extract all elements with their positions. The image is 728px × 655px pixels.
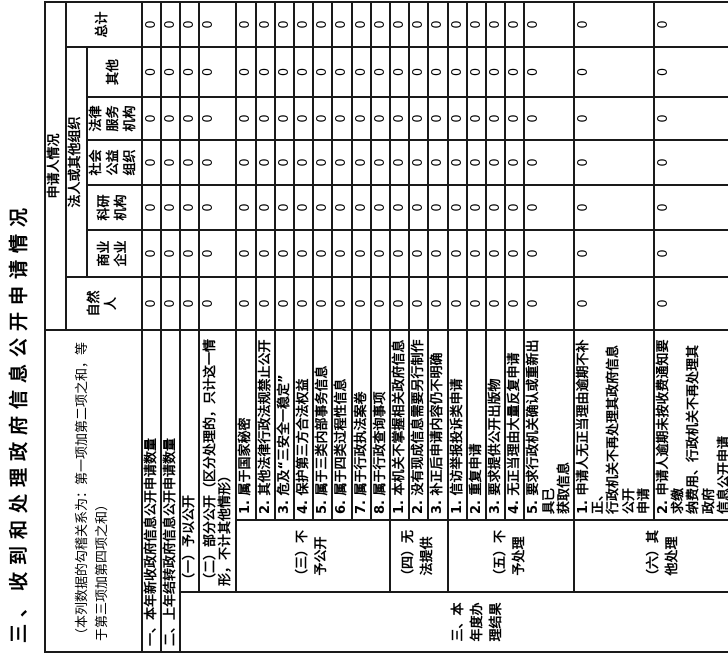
row-label: 2. 其他法律行政法规禁止公开 — [256, 330, 275, 520]
natural-person-header: 自然 人 — [66, 277, 142, 330]
data-cell: 0 — [332, 140, 351, 185]
data-cell: 0 — [313, 277, 332, 330]
data-cell: 0 — [448, 230, 467, 277]
data-cell: 0 — [371, 2, 390, 47]
data-cell: 0 — [409, 230, 428, 277]
data-cell: 0 — [486, 230, 505, 277]
header-row: （本列数据的勾稽关系为：第一项加第二项之和，等 于第三项加第四项之和） 申请人情… — [45, 2, 66, 652]
data-cell: 0 — [428, 97, 447, 140]
data-cell: 0 — [275, 97, 294, 140]
data-cell: 0 — [352, 2, 371, 47]
data-cell: 0 — [275, 140, 294, 185]
data-cell: 0 — [505, 97, 524, 140]
data-cell: 0 — [574, 2, 654, 47]
data-cell: 0 — [409, 47, 428, 97]
data-cell: 0 — [256, 277, 275, 330]
data-cell: 0 — [448, 140, 467, 185]
data-cell: 0 — [180, 185, 199, 230]
data-cell: 0 — [467, 185, 486, 230]
data-cell: 0 — [275, 2, 294, 47]
data-cell: 0 — [161, 2, 180, 47]
table-row: （二）部分公开（区分处理的，只计这一情 形，不计其他情形）0000000 — [199, 2, 236, 652]
data-cell: 0 — [199, 2, 236, 47]
data-cell: 0 — [574, 97, 654, 140]
row-label: 一、本年新收政府信息公开申请数量 — [142, 330, 161, 652]
data-cell: 0 — [180, 230, 199, 277]
subgroup-label: （三）不 予公开 — [236, 520, 390, 592]
subgroup-label: （四）无 法提供 — [390, 520, 448, 592]
commercial-enterprise-header: 商业 企业 — [87, 230, 142, 277]
data-cell: 0 — [409, 277, 428, 330]
data-cell: 0 — [332, 2, 351, 47]
data-cell: 0 — [467, 47, 486, 97]
data-cell: 0 — [313, 230, 332, 277]
data-cell: 0 — [313, 47, 332, 97]
data-cell: 0 — [294, 230, 313, 277]
data-cell: 0 — [236, 2, 255, 47]
legal-person-header: 法人或其他组织 — [66, 47, 87, 277]
data-cell: 0 — [524, 2, 574, 47]
data-cell: 0 — [448, 97, 467, 140]
data-cell: 0 — [142, 277, 161, 330]
data-cell: 0 — [161, 277, 180, 330]
data-cell: 0 — [654, 47, 728, 97]
data-cell: 0 — [654, 185, 728, 230]
row-label: 3. 要求提供公开出版物 — [486, 330, 505, 520]
data-cell: 0 — [142, 47, 161, 97]
applicant-status-header: 申请人情况 — [45, 2, 66, 330]
data-cell: 0 — [486, 47, 505, 97]
row-label: （二）部分公开（区分处理的，只计这一情 形，不计其他情形） — [199, 330, 236, 592]
table-row: 三、本 年度办 理结果 （一）予以公开0000000 — [180, 2, 199, 652]
data-cell: 0 — [486, 140, 505, 185]
row-label: （一）予以公开 — [180, 330, 199, 592]
legal-service-header: 法律 服务 机构 — [87, 97, 142, 140]
data-cell: 0 — [574, 185, 654, 230]
data-cell: 0 — [199, 277, 236, 330]
row-label: 4. 无正当理由大量反复申请 — [505, 330, 524, 520]
data-cell: 0 — [524, 97, 574, 140]
data-cell: 0 — [256, 97, 275, 140]
data-cell: 0 — [332, 47, 351, 97]
section-title: 三、收到和处理政府信息公开申请情况 — [4, 201, 31, 643]
data-cell: 0 — [390, 230, 409, 277]
data-cell: 0 — [142, 140, 161, 185]
data-cell: 0 — [332, 97, 351, 140]
data-cell: 0 — [371, 97, 390, 140]
data-cell: 0 — [371, 230, 390, 277]
data-cell: 0 — [428, 277, 447, 330]
data-cell: 0 — [275, 47, 294, 97]
data-cell: 0 — [371, 140, 390, 185]
data-cell: 0 — [505, 2, 524, 47]
data-cell: 0 — [448, 47, 467, 97]
data-cell: 0 — [486, 97, 505, 140]
data-cell: 0 — [236, 97, 255, 140]
row-label: 二、上年结转政府信息公开申请数量 — [161, 330, 180, 652]
row-label: 5. 属于三类内部事务信息 — [313, 330, 332, 520]
data-cell: 0 — [371, 47, 390, 97]
data-cell: 0 — [256, 140, 275, 185]
data-cell: 0 — [505, 230, 524, 277]
data-cell: 0 — [313, 2, 332, 47]
data-cell: 0 — [199, 230, 236, 277]
row-label: 5. 要求行政机关确认或重新出具已 获取信息 — [524, 330, 574, 520]
table-row: （六）其 他处理 1. 申请人无正当理由逾期不补正、 行政机关不再处理其政府信息… — [574, 2, 654, 652]
data-cell: 0 — [428, 140, 447, 185]
data-cell: 0 — [180, 277, 199, 330]
data-cell: 0 — [313, 140, 332, 185]
data-cell: 0 — [574, 230, 654, 277]
data-cell: 0 — [524, 277, 574, 330]
row-label: 4. 保护第三方合法权益 — [294, 330, 313, 520]
data-cell: 0 — [524, 140, 574, 185]
data-cell: 0 — [161, 47, 180, 97]
data-cell: 0 — [180, 140, 199, 185]
data-cell: 0 — [654, 277, 728, 330]
data-cell: 0 — [236, 185, 255, 230]
table-row: （五）不 予处理 1. 信访举报投诉类申请0000000 — [448, 2, 467, 652]
data-cell: 0 — [524, 230, 574, 277]
row-label: 8. 属于行政查询事项 — [371, 330, 390, 520]
row-label: 7. 属于行政执法案卷 — [352, 330, 371, 520]
data-cell: 0 — [574, 277, 654, 330]
data-cell: 0 — [161, 97, 180, 140]
data-cell: 0 — [467, 2, 486, 47]
data-cell: 0 — [524, 47, 574, 97]
data-cell: 0 — [467, 97, 486, 140]
data-cell: 0 — [256, 2, 275, 47]
row-label: 1. 信访举报投诉类申请 — [448, 330, 467, 520]
data-cell: 0 — [180, 47, 199, 97]
data-cell: 0 — [256, 185, 275, 230]
data-cell: 0 — [352, 277, 371, 330]
data-cell: 0 — [256, 47, 275, 97]
page: 三、收到和处理政府信息公开申请情况 （本列数据的勾稽关系为：第一项加第二项之和，… — [0, 0, 728, 655]
data-cell: 0 — [332, 185, 351, 230]
data-cell: 0 — [574, 47, 654, 97]
table-row: （四）无 法提供 1. 本机关不掌握相关政府信息0000000 — [390, 2, 409, 652]
data-cell: 0 — [199, 97, 236, 140]
data-cell: 0 — [236, 277, 255, 330]
application-stats-table: （本列数据的勾稽关系为：第一项加第二项之和，等 于第三项加第四项之和） 申请人情… — [44, 1, 728, 653]
data-cell: 0 — [390, 185, 409, 230]
row-label: 2. 没有现成信息需要另行制作 — [409, 330, 428, 520]
data-cell: 0 — [409, 140, 428, 185]
row-label: 6. 属于四类过程性信息 — [332, 330, 351, 520]
group-label: 三、本 年度办 理结果 — [180, 592, 728, 652]
social-org-header: 社会 公益 组织 — [87, 140, 142, 185]
data-cell: 0 — [409, 185, 428, 230]
data-cell: 0 — [428, 230, 447, 277]
row-label: 3. 危及“三安全一稳定” — [275, 330, 294, 520]
data-cell: 0 — [448, 277, 467, 330]
data-cell: 0 — [180, 2, 199, 47]
data-cell: 0 — [524, 185, 574, 230]
data-cell: 0 — [352, 140, 371, 185]
data-cell: 0 — [448, 185, 467, 230]
data-cell: 0 — [275, 277, 294, 330]
row-label: 3. 补正后申请内容仍不明确 — [428, 330, 447, 520]
data-cell: 0 — [199, 185, 236, 230]
data-cell: 0 — [486, 185, 505, 230]
data-cell: 0 — [371, 277, 390, 330]
data-cell: 0 — [313, 185, 332, 230]
data-cell: 0 — [505, 277, 524, 330]
data-cell: 0 — [313, 97, 332, 140]
total-header: 总计 — [66, 2, 142, 47]
data-cell: 0 — [294, 277, 313, 330]
data-cell: 0 — [142, 230, 161, 277]
other-header: 其他 — [87, 47, 142, 97]
data-cell: 0 — [294, 97, 313, 140]
subgroup-label: （六）其 他处理 — [574, 520, 728, 592]
rotated-sheet: 三、收到和处理政府信息公开申请情况 （本列数据的勾稽关系为：第一项加第二项之和，… — [0, 0, 728, 655]
data-cell: 0 — [390, 2, 409, 47]
data-cell: 0 — [236, 140, 255, 185]
row-label: 2. 重复申请 — [467, 330, 486, 520]
data-cell: 0 — [467, 277, 486, 330]
data-cell: 0 — [352, 97, 371, 140]
data-cell: 0 — [390, 97, 409, 140]
data-cell: 0 — [161, 230, 180, 277]
table-row: 一、本年新收政府信息公开申请数量0000000 — [142, 2, 161, 652]
data-cell: 0 — [574, 140, 654, 185]
data-cell: 0 — [236, 230, 255, 277]
data-cell: 0 — [467, 140, 486, 185]
data-cell: 0 — [332, 230, 351, 277]
data-cell: 0 — [352, 230, 371, 277]
data-cell: 0 — [409, 97, 428, 140]
data-cell: 0 — [654, 140, 728, 185]
row-label: 1. 申请人无正当理由逾期不补正、 行政机关不再处理其政府信息公开 申请 — [574, 330, 654, 520]
data-cell: 0 — [505, 140, 524, 185]
data-cell: 0 — [294, 2, 313, 47]
data-cell: 0 — [448, 2, 467, 47]
data-cell: 0 — [161, 185, 180, 230]
row-label: 1. 属于国家秘密 — [236, 330, 255, 520]
data-cell: 0 — [505, 185, 524, 230]
data-cell: 0 — [294, 47, 313, 97]
data-cell: 0 — [352, 47, 371, 97]
table-row: 二、上年结转政府信息公开申请数量0000000 — [161, 2, 180, 652]
data-cell: 0 — [390, 277, 409, 330]
row-label: 1. 本机关不掌握相关政府信息 — [390, 330, 409, 520]
data-cell: 0 — [142, 2, 161, 47]
table-row: （三）不 予公开 1. 属于国家秘密0000000 — [236, 2, 255, 652]
data-cell: 0 — [505, 47, 524, 97]
subgroup-label: （五）不 予处理 — [448, 520, 574, 592]
data-cell: 0 — [654, 97, 728, 140]
data-cell: 0 — [180, 97, 199, 140]
data-cell: 0 — [332, 277, 351, 330]
data-cell: 0 — [256, 230, 275, 277]
data-cell: 0 — [371, 185, 390, 230]
data-cell: 0 — [294, 140, 313, 185]
data-cell: 0 — [654, 230, 728, 277]
data-cell: 0 — [142, 185, 161, 230]
data-cell: 0 — [409, 2, 428, 47]
data-cell: 0 — [428, 2, 447, 47]
row-label: 2. 申请人逾期未按收费通知要求缴 纳费用、行政机关不再处理其政府 信息公开申请 — [654, 330, 728, 520]
data-cell: 0 — [294, 185, 313, 230]
data-cell: 0 — [390, 140, 409, 185]
data-cell: 0 — [161, 140, 180, 185]
data-cell: 0 — [390, 47, 409, 97]
data-cell: 0 — [275, 230, 294, 277]
data-cell: 0 — [199, 140, 236, 185]
data-cell: 0 — [428, 185, 447, 230]
data-cell: 0 — [199, 47, 236, 97]
data-cell: 0 — [352, 185, 371, 230]
data-cell: 0 — [486, 2, 505, 47]
data-cell: 0 — [236, 47, 255, 97]
data-cell: 0 — [428, 47, 447, 97]
data-cell: 0 — [142, 97, 161, 140]
data-cell: 0 — [275, 185, 294, 230]
data-cell: 0 — [654, 2, 728, 47]
data-cell: 0 — [486, 277, 505, 330]
table-note: （本列数据的勾稽关系为：第一项加第二项之和，等 于第三项加第四项之和） — [45, 330, 142, 652]
research-institution-header: 科研 机构 — [87, 185, 142, 230]
data-cell: 0 — [467, 230, 486, 277]
